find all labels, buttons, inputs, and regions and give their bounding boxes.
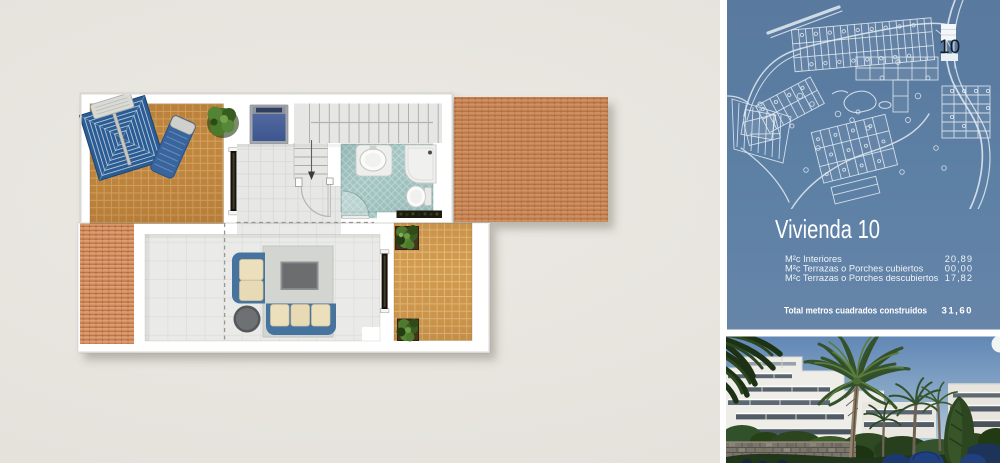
svg-text:Total metros cuadrados constru: Total metros cuadrados construidos bbox=[784, 306, 927, 317]
svg-text:Vivienda 10: Vivienda 10 bbox=[775, 214, 880, 244]
svg-text:M²c Terrazas o Porches descubi: M²c Terrazas o Porches descubiertos bbox=[785, 273, 939, 283]
svg-text:M²c Terrazas o Porches cubiert: M²c Terrazas o Porches cubiertos bbox=[785, 264, 924, 274]
svg-text:M²c Interiores: M²c Interiores bbox=[785, 254, 842, 264]
svg-text:17,82: 17,82 bbox=[945, 273, 973, 283]
svg-text:31,60: 31,60 bbox=[941, 306, 973, 317]
svg-text:10: 10 bbox=[939, 37, 960, 58]
svg-text:00,00: 00,00 bbox=[945, 264, 973, 274]
svg-text:20,89: 20,89 bbox=[945, 254, 973, 264]
